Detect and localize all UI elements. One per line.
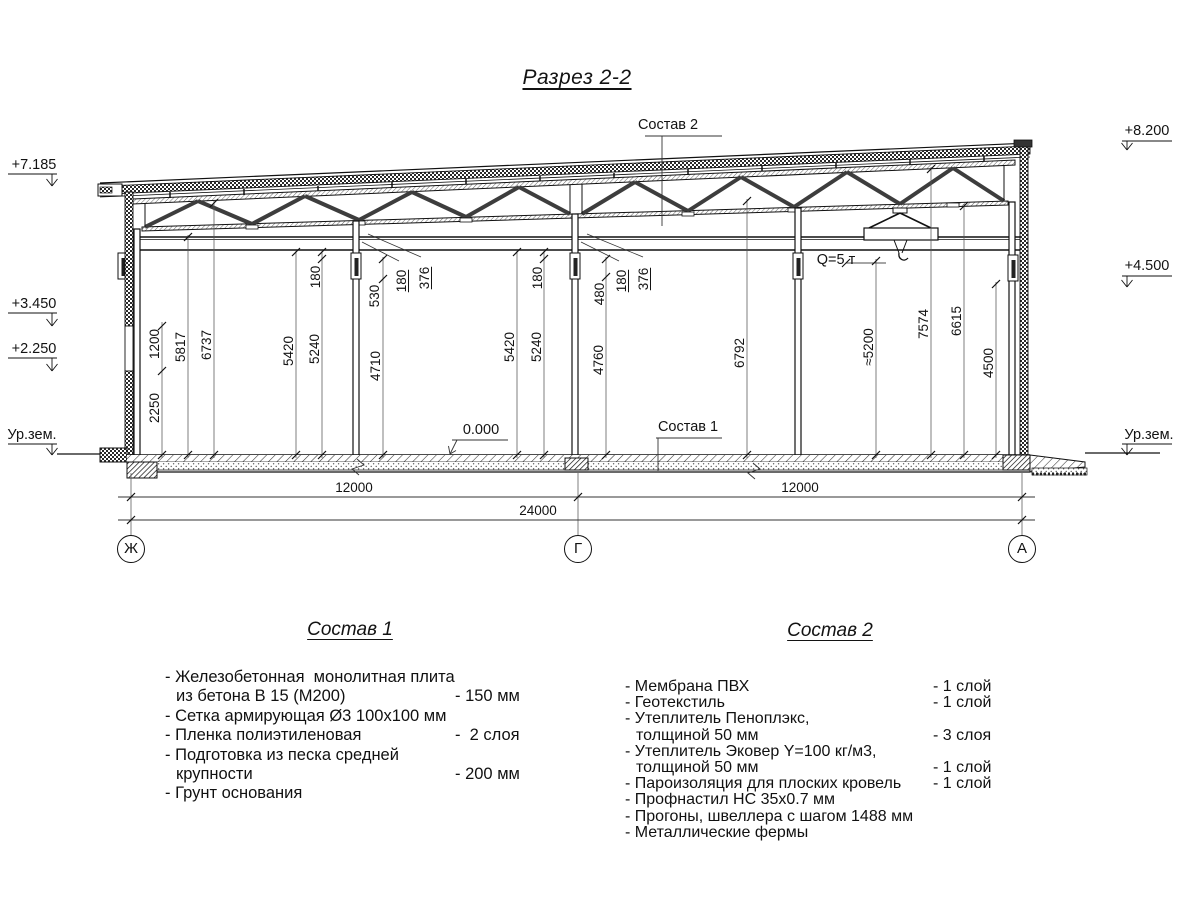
dim-label: 6737 [200,310,218,380]
dim-label: ≈5200 [862,312,880,382]
ground-level-label: Ур.зем. [5,428,59,444]
list-item: - Утеплитель Пеноплэкс, [625,710,1005,726]
dim-label: 1200 [148,309,166,379]
sostav1-list: - Железобетонная монолитная плита из бет… [165,668,527,804]
ground-level-label: Ур.зем. [1122,428,1176,444]
dim-label: 5420 [503,312,521,382]
sostav1-heading: Состав 1 [250,620,450,641]
sostav2-heading: Состав 2 [730,621,930,642]
list-item: - Пароизоляция для плоских кровель- 1 сл… [625,775,1005,791]
list-item: толщиной 50 мм- 3 слоя [625,727,1005,743]
list-item: - Подготовка из песка средней [165,746,527,765]
list-item: - Геотекстиль- 1 слой [625,694,1005,710]
sostav2-list: - Мембрана ПВХ- 1 слой - Геотекстиль- 1 … [625,678,1005,840]
span-dim-label: 12000 [760,481,840,496]
dim-label: 5240 [308,314,326,384]
list-item: крупности- 200 мм [165,765,527,784]
dim-label: 4500 [982,328,1000,398]
dim-label: 4760 [592,325,610,395]
zero-level-label: 0.000 [436,423,526,439]
list-item: - Сетка армирующая Ø3 100х100 мм [165,707,527,726]
dim-label: 6792 [733,318,751,388]
total-dim-label: 24000 [498,504,578,519]
elevation-label: +3.450 [7,297,61,313]
dim-label: 180 [531,243,549,313]
drawing-title: Разрез 2-2 [457,66,697,89]
elevation-label: +7.185 [7,158,61,174]
hanger-brackets [118,253,1018,281]
sostav1-callout: Состав 1 [643,420,733,436]
note-label: 376 [637,244,655,314]
elevation-label: +2.250 [7,342,61,358]
dim-label: 4710 [369,331,387,401]
dim-label: 7574 [917,289,935,359]
list-item: - Профнастил НС 35х0.7 мм [625,791,1005,807]
span-dim-label: 12000 [314,481,394,496]
list-item: - Мембрана ПВХ- 1 слой [625,678,1005,694]
axis-bubble-label: Г [563,541,593,558]
note-label: 180 [395,246,413,316]
axis-bubble-label: Ж [116,541,146,558]
dim-label: 530 [368,261,386,331]
list-item: толщиной 50 мм- 1 слой [625,759,1005,775]
blueprint-page: Разрез 2-2 +7.185 +3.450 +2.250 Ур.зем. … [0,0,1200,900]
dim-label: 6615 [950,286,968,356]
dim-label: 480 [593,259,611,329]
list-item: - Пленка полиэтиленовая- 2 слоя [165,726,527,745]
crane-capacity-label: Q=5 т [791,253,881,269]
dim-label: 2250 [148,373,166,443]
note-label: 376 [418,243,436,313]
elevation-label: +4.500 [1120,259,1174,275]
axis-bubble-label: А [1007,541,1037,558]
list-item: - Железобетонная монолитная плита [165,668,527,687]
list-item: - Металлические фермы [625,824,1005,840]
dim-label: 5817 [174,312,192,382]
dim-label: 5420 [282,316,300,386]
list-item: - Грунт основания [165,784,527,803]
elevation-label: +8.200 [1120,124,1174,140]
sostav2-callout: Состав 2 [623,118,713,134]
list-item: - Утеплитель Эковер Y=100 кг/м3, [625,743,1005,759]
dim-label: 5240 [530,312,548,382]
dim-label: 180 [309,242,327,312]
note-label: 180 [615,246,633,316]
list-item: - Прогоны, швеллера с шагом 1488 мм [625,808,1005,824]
list-item: из бетона В 15 (М200)- 150 мм [165,687,527,706]
